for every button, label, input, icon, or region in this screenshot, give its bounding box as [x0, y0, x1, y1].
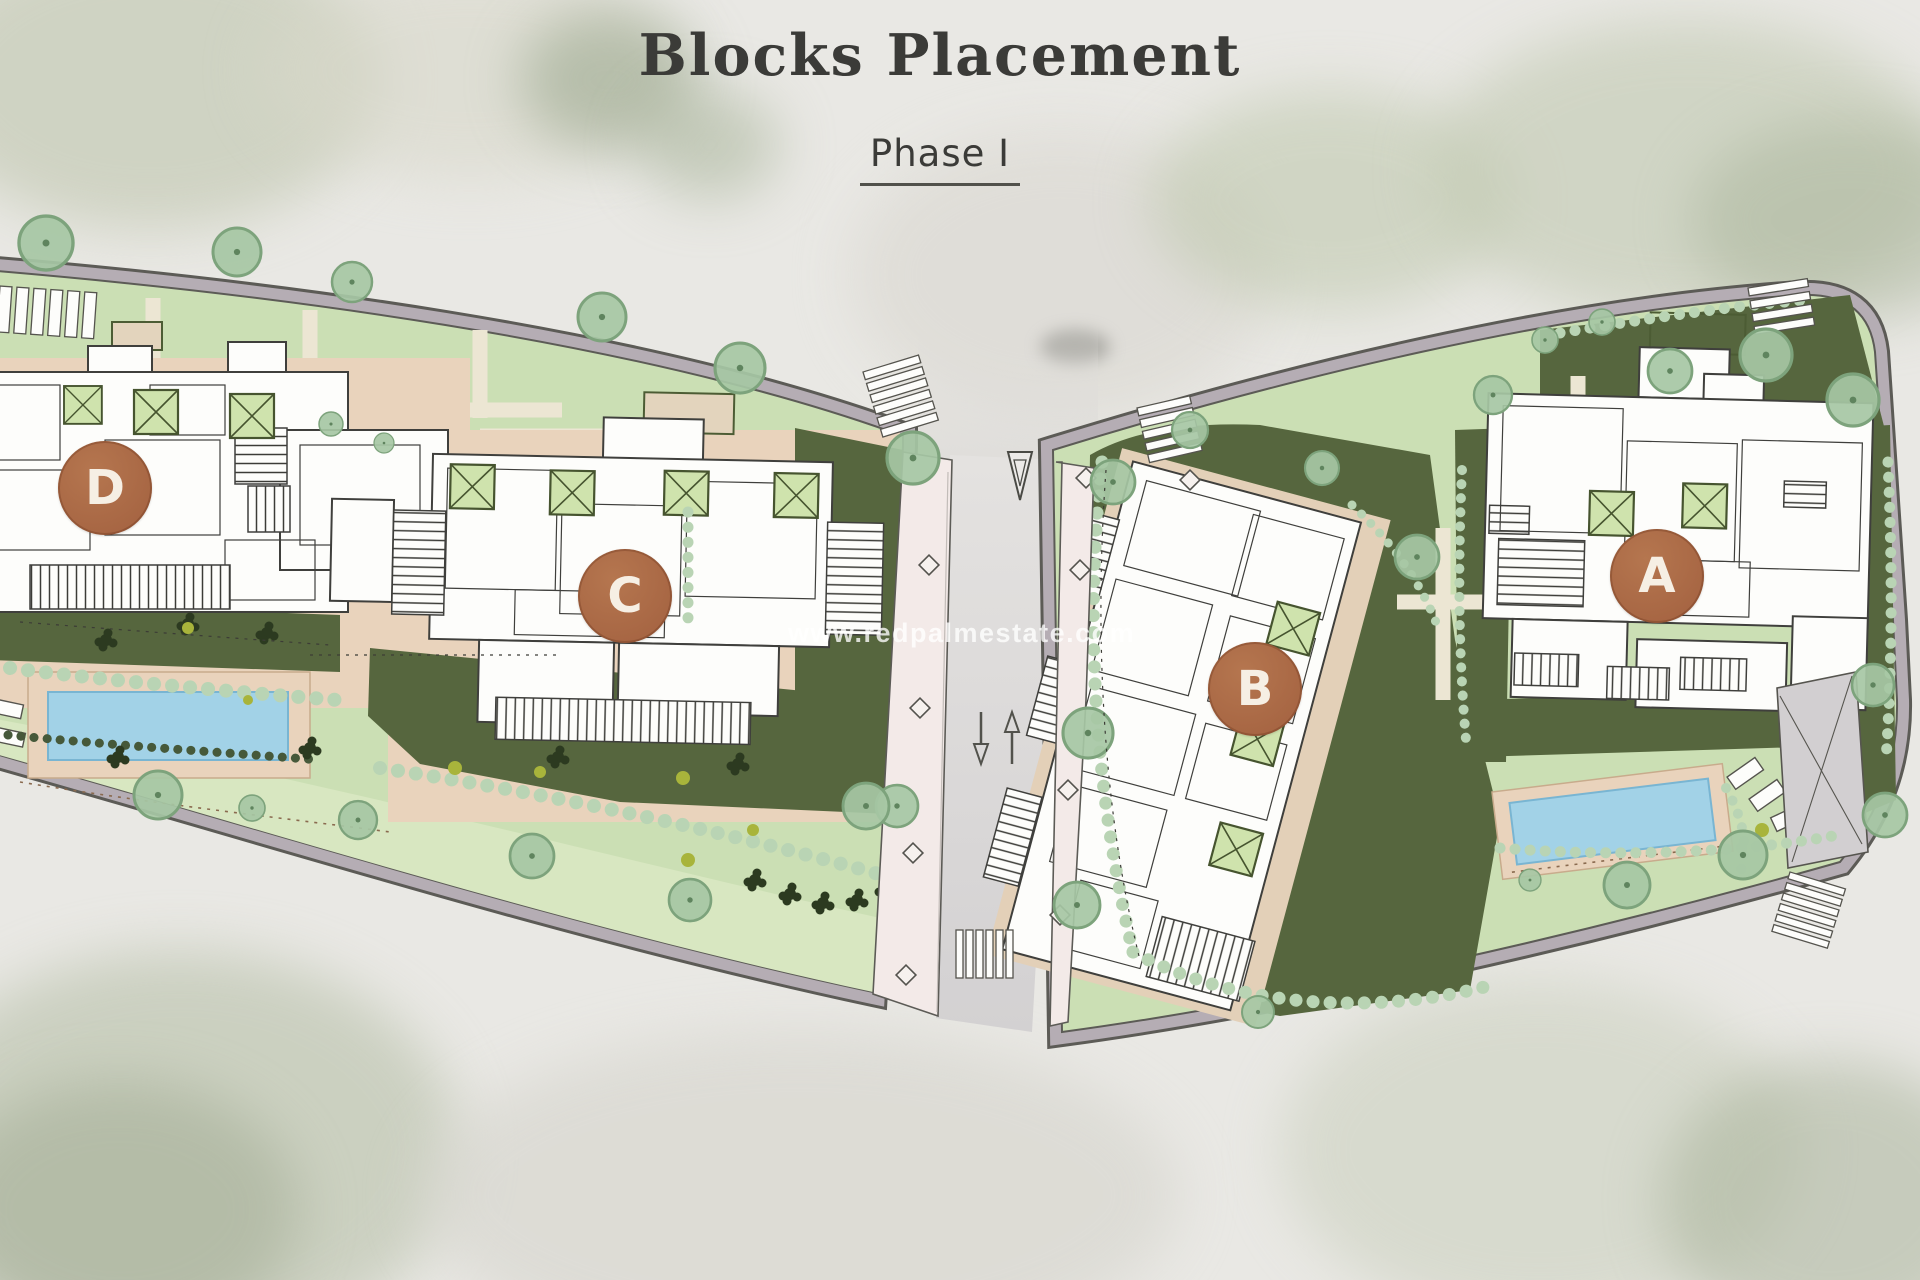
- phase-label-wrap: Phase I: [0, 132, 1880, 186]
- phase-label: Phase I: [860, 132, 1020, 186]
- block-badge-d[interactable]: D: [58, 441, 152, 535]
- driveway-ramp: [1777, 672, 1868, 868]
- left-parcel: [0, 268, 903, 992]
- block-badge-c[interactable]: C: [578, 549, 672, 643]
- right-parcel: [964, 295, 1897, 1032]
- site-plan-canvas: Blocks Placement Phase I www.redpalmesta…: [0, 0, 1920, 1280]
- page-title: Blocks Placement: [0, 22, 1880, 89]
- watermark: www.redpalmestate.com: [788, 618, 1118, 649]
- block-badge-b[interactable]: B: [1208, 642, 1302, 736]
- block-badge-a[interactable]: A: [1610, 529, 1704, 623]
